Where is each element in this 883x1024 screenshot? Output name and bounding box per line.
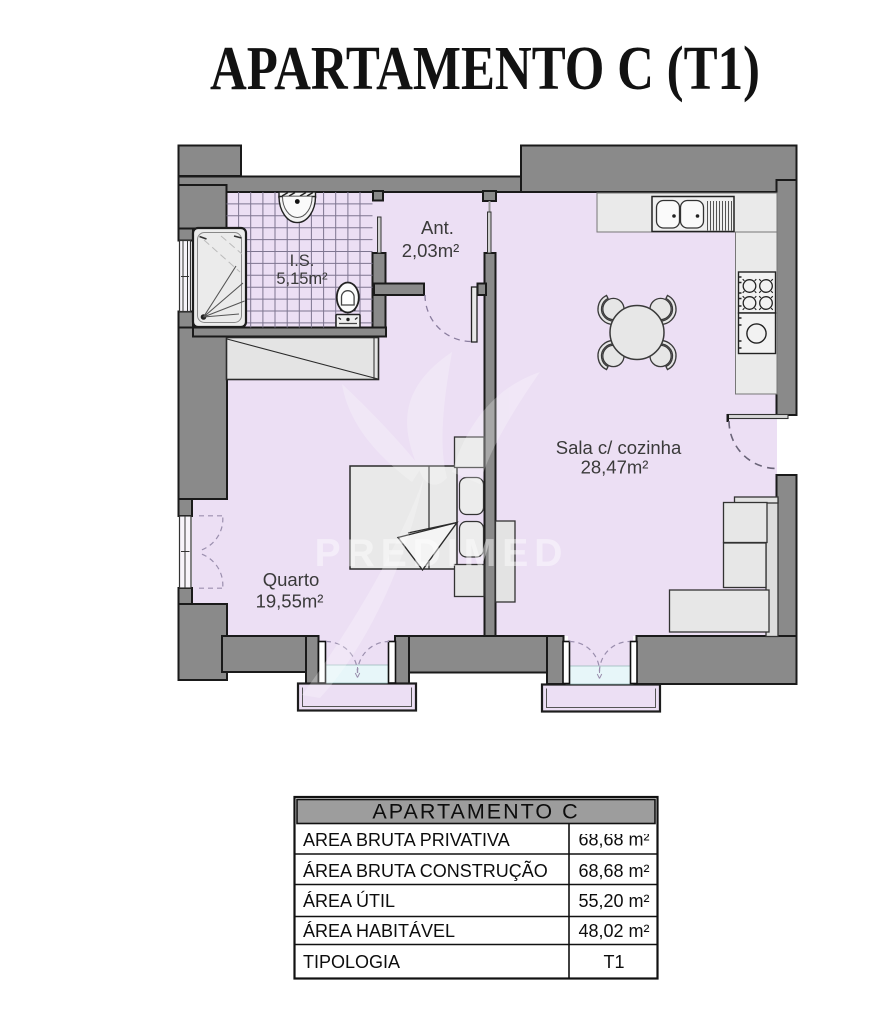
svg-text:AREA BRUTA PRIVATIVA: AREA BRUTA PRIVATIVA <box>303 830 510 850</box>
svg-text:ÁREA HABITÁVEL: ÁREA HABITÁVEL <box>303 921 455 941</box>
svg-text:PREDIMED: PREDIMED <box>315 532 569 575</box>
svg-text:APARTAMENTO C (T1): APARTAMENTO C (T1) <box>210 35 760 103</box>
svg-text:2,03m²: 2,03m² <box>402 240 460 261</box>
svg-text:68,68 m²: 68,68 m² <box>578 861 649 881</box>
svg-text:Quarto: Quarto <box>263 569 320 590</box>
svg-text:Sala c/ cozinha: Sala c/ cozinha <box>556 437 682 458</box>
svg-text:19,55m²: 19,55m² <box>256 591 324 612</box>
svg-text:48,02 m²: 48,02 m² <box>578 921 649 941</box>
svg-text:ÁREA BRUTA CONSTRUÇÃO: ÁREA BRUTA CONSTRUÇÃO <box>303 860 548 881</box>
svg-text:ÁREA ÚTIL: ÁREA ÚTIL <box>303 890 395 911</box>
svg-text:28,47m²: 28,47m² <box>581 457 649 478</box>
svg-text:TIPOLOGIA: TIPOLOGIA <box>303 952 400 972</box>
svg-text:T1: T1 <box>603 952 624 972</box>
svg-text:APARTAMENTO C: APARTAMENTO C <box>372 800 579 824</box>
svg-text:5,15m²: 5,15m² <box>276 270 328 288</box>
svg-text:I.S.: I.S. <box>290 252 315 270</box>
svg-text:55,20 m²: 55,20 m² <box>578 891 649 911</box>
svg-text:Ant.: Ant. <box>421 217 454 238</box>
